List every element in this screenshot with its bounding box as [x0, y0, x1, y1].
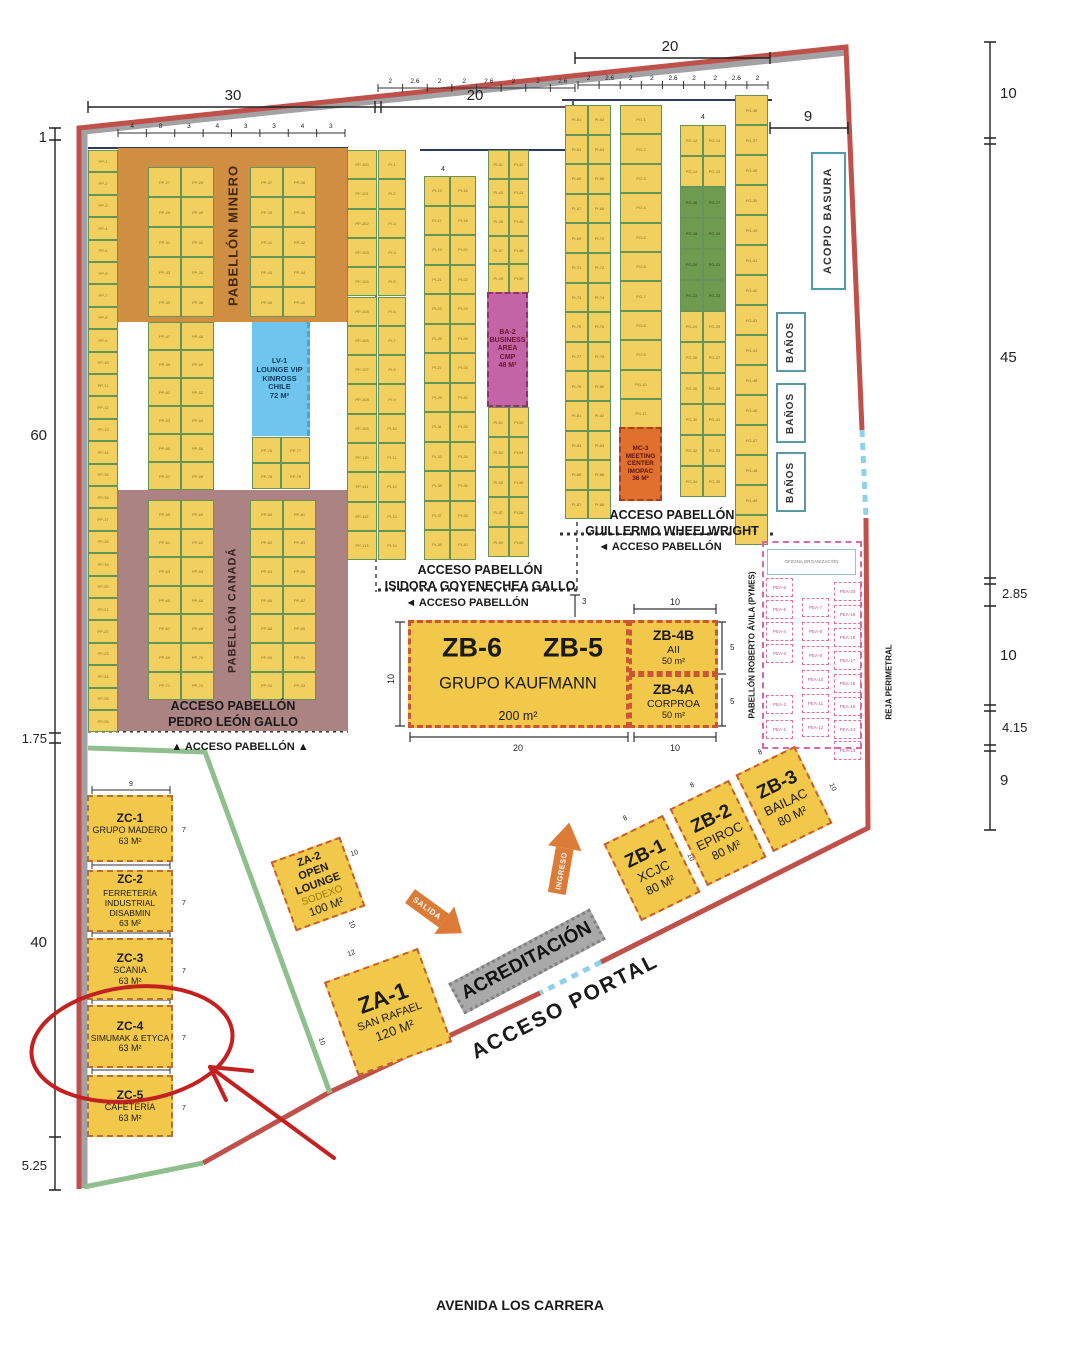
zc4-highlight-circle	[25, 975, 239, 1113]
expo-floor-plan: 1601.75405.2510452.85104.159302020948343…	[0, 0, 1080, 1361]
annotation-svg	[0, 0, 1080, 1361]
zc4-annotation-arrow-0	[210, 1067, 334, 1158]
